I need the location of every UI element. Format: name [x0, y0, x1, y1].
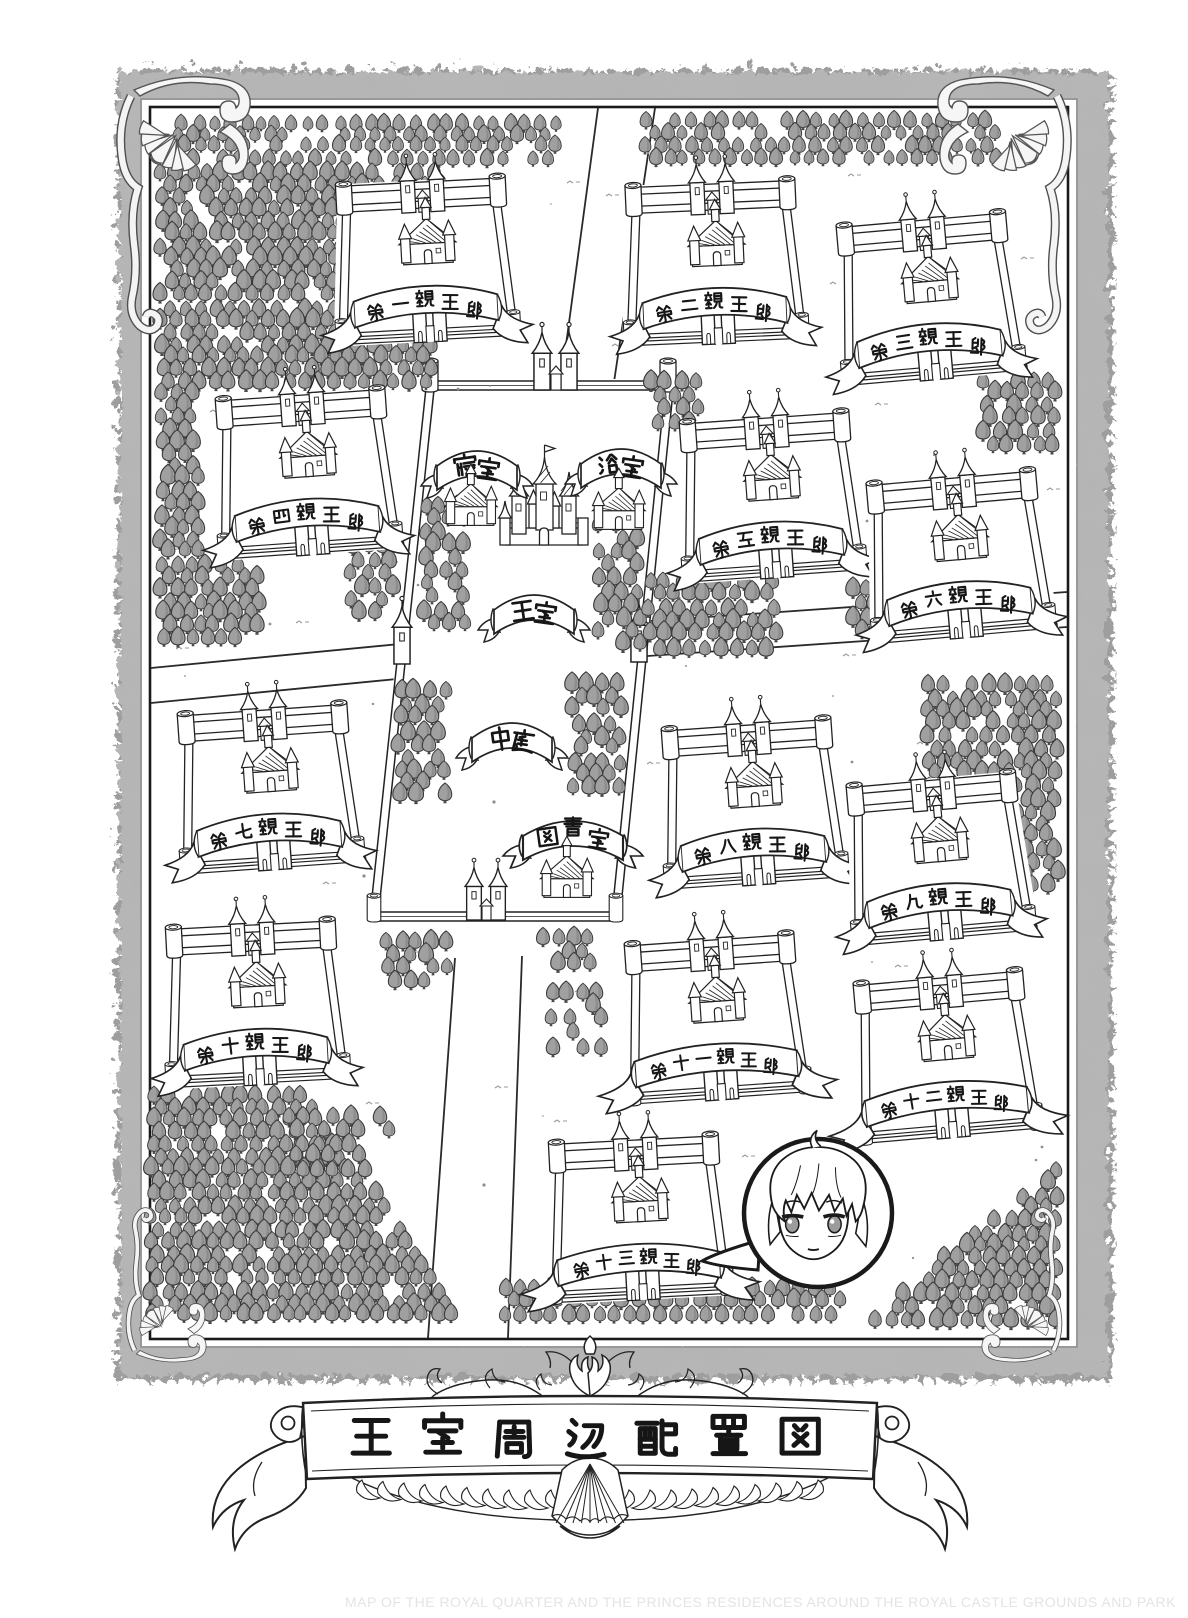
svg-text:MAP OF THE ROYAL QUARTER AND T: MAP OF THE ROYAL QUARTER AND THE PRINCES… [345, 1594, 1176, 1610]
